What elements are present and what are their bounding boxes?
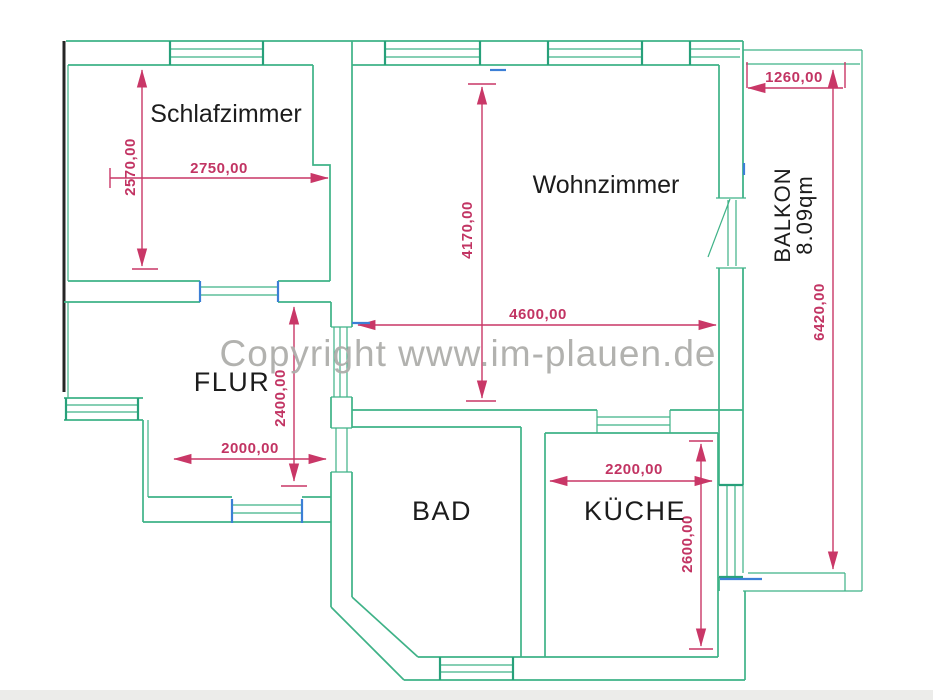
dimension-flur-width: 2000,00: [174, 440, 326, 459]
dimension-label-wohnzimmer-width: 4600,00: [509, 306, 567, 323]
door-wohnzimmer-kueche: [597, 410, 670, 433]
window-wohnzimmer-top-right: [548, 41, 642, 65]
scan-edge: [0, 690, 933, 700]
dimension-label-schlafzimmer-width: 2750,00: [190, 160, 248, 177]
dimension-label-balkon-depth: 6420,00: [811, 283, 828, 341]
balcony-outline: [743, 50, 862, 591]
dimension-label-flur-depth: 2400,00: [272, 369, 289, 427]
floor-plan-drawing: 2570,00 2750,00 4170,00 4600,00 2400,00 …: [0, 0, 933, 700]
watermark-text: Copyright www.im-plauen.de: [220, 333, 717, 374]
dimension-balkon-depth: 6420,00: [811, 70, 833, 569]
window-top-corner: [690, 41, 740, 65]
door-balcony: [708, 198, 746, 268]
room-label-balkon-area: 8.09qm: [792, 175, 817, 254]
window-bad-bottom: [440, 657, 513, 680]
window-kueche-right: [719, 485, 743, 577]
door-schlafzimmer: [200, 281, 278, 302]
window-flur-alcove: [66, 398, 138, 420]
room-label-wohnzimmer: Wohnzimmer: [533, 171, 680, 199]
room-label-kueche: KÜCHE: [584, 496, 686, 526]
window-wohnzimmer-top-left: [385, 41, 480, 65]
room-label-bad: BAD: [412, 496, 472, 526]
door-flur-bad: [331, 428, 352, 472]
dimension-label-wohnzimmer-depth: 4170,00: [459, 201, 476, 259]
dimension-label-kueche-width: 2200,00: [605, 461, 663, 478]
dimension-wohnzimmer-width: 4600,00: [358, 306, 716, 325]
dimension-balkon-width: 1260,00: [747, 62, 845, 88]
dimension-label-flur-width: 2000,00: [221, 440, 279, 457]
window-schlafzimmer-top: [170, 41, 263, 65]
dimension-kueche-width: 2200,00: [550, 461, 712, 481]
door-entrance: [232, 499, 302, 523]
floor-plan: 2570,00 2750,00 4170,00 4600,00 2400,00 …: [0, 0, 933, 700]
room-label-schlafzimmer: Schlafzimmer: [150, 100, 301, 128]
dimension-label-schlafzimmer-depth: 2570,00: [122, 138, 139, 196]
dimension-label-balkon-width: 1260,00: [765, 69, 823, 86]
dimension-kueche-depth: 2600,00: [679, 441, 713, 649]
